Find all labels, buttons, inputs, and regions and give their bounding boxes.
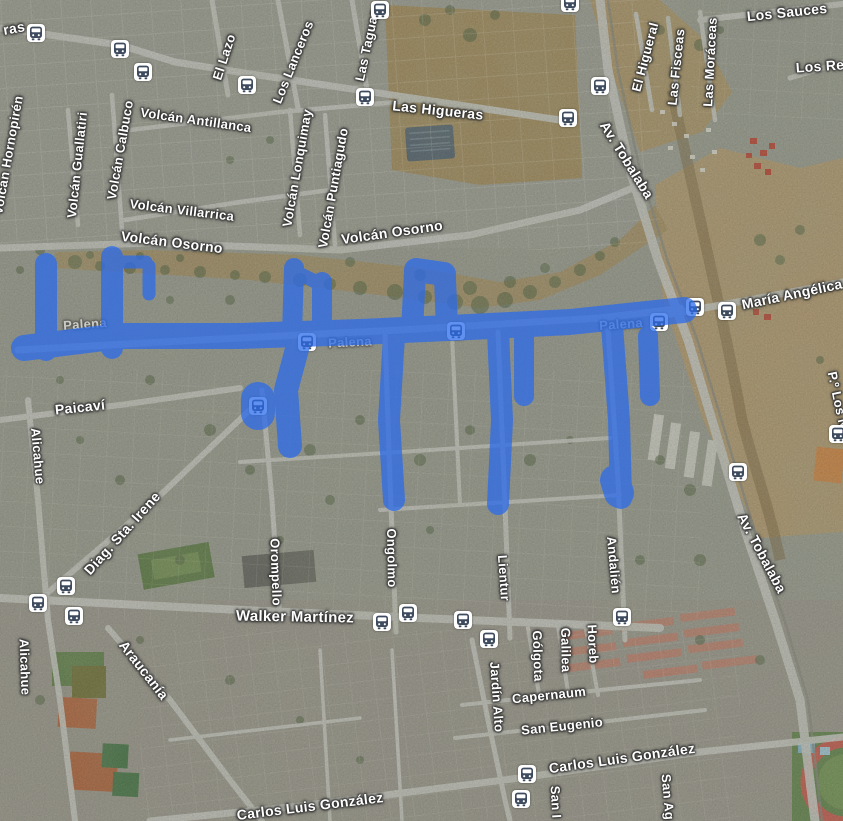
bus-stop-icon[interactable] [65,607,83,625]
bus-stop-icon[interactable] [686,298,704,316]
bus-stop-icon[interactable] [399,604,417,622]
bus-stop-icon[interactable] [729,463,747,481]
bus-stop-icon[interactable] [591,77,609,95]
bus-stop-icon[interactable] [829,425,843,443]
bus-stop-icon[interactable] [518,765,536,783]
bus-stop-icon[interactable] [27,24,45,42]
bus-stop-icon[interactable] [512,790,530,808]
bus-stop-icon[interactable] [57,577,75,595]
bus-stop-icon[interactable] [650,313,668,331]
bus-stop-icon[interactable] [561,0,579,12]
bus-stop-icon[interactable] [718,302,736,320]
bus-stop-icon[interactable] [480,630,498,648]
bus-stop-icon[interactable] [447,322,465,340]
bus-stop-icon[interactable] [134,63,152,81]
bus-stop-icon[interactable] [111,40,129,58]
bus-stop-icon[interactable] [371,1,389,19]
bus-stop-icon[interactable] [249,397,267,415]
bus-stop-icon[interactable] [454,611,472,629]
bus-stop-icon[interactable] [559,109,577,127]
bus-stop-icon[interactable] [373,613,391,631]
map-viewport[interactable]: rasEl LazoLos LancerosLas TaguasLas Higu… [0,0,843,821]
bus-stop-icon[interactable] [238,76,256,94]
bus-stops-layer [0,0,843,821]
bus-stop-icon[interactable] [356,88,374,106]
bus-stop-icon[interactable] [29,594,47,612]
bus-stop-icon[interactable] [613,608,631,626]
bus-stop-icon[interactable] [298,333,316,351]
